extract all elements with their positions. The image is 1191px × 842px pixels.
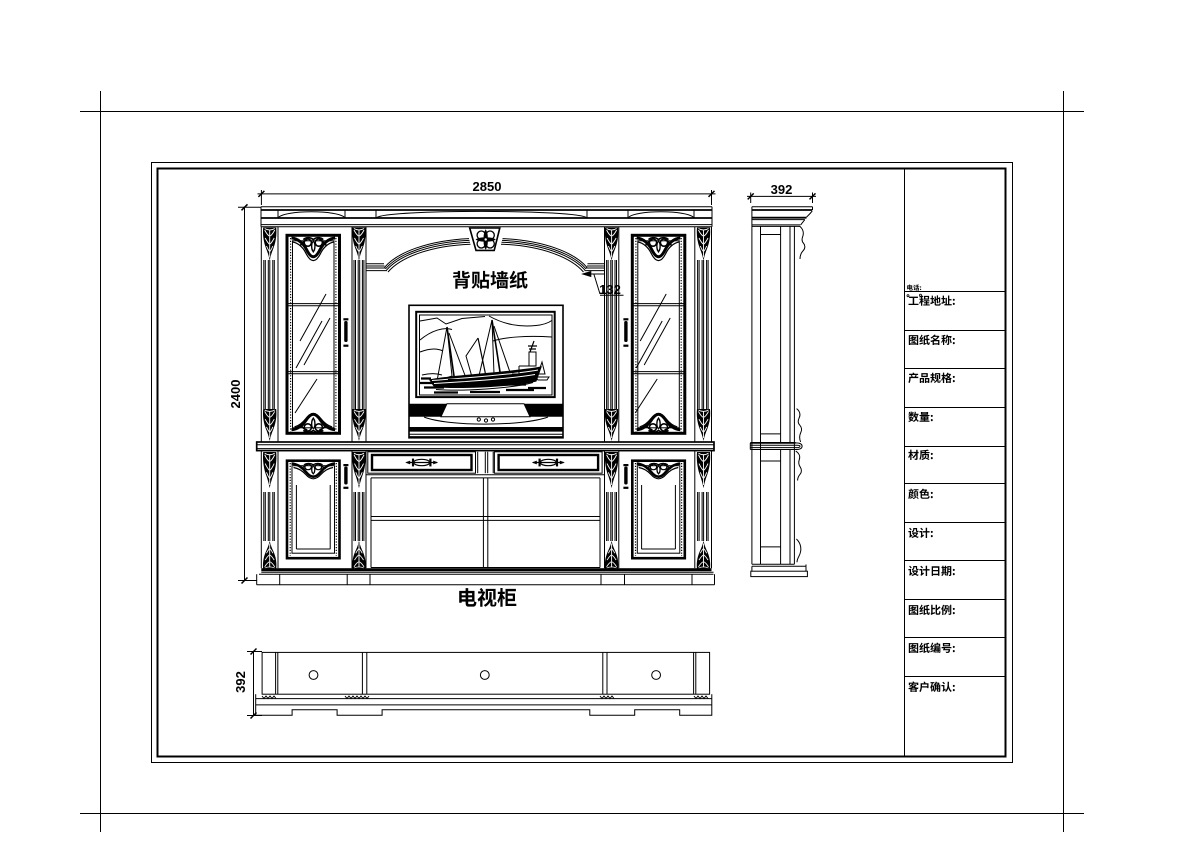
svg-text:392: 392 <box>233 671 248 693</box>
svg-text:2850: 2850 <box>473 179 502 194</box>
svg-text:392: 392 <box>771 182 793 197</box>
svg-text:132: 132 <box>599 282 621 297</box>
svg-text:2400: 2400 <box>228 380 243 409</box>
